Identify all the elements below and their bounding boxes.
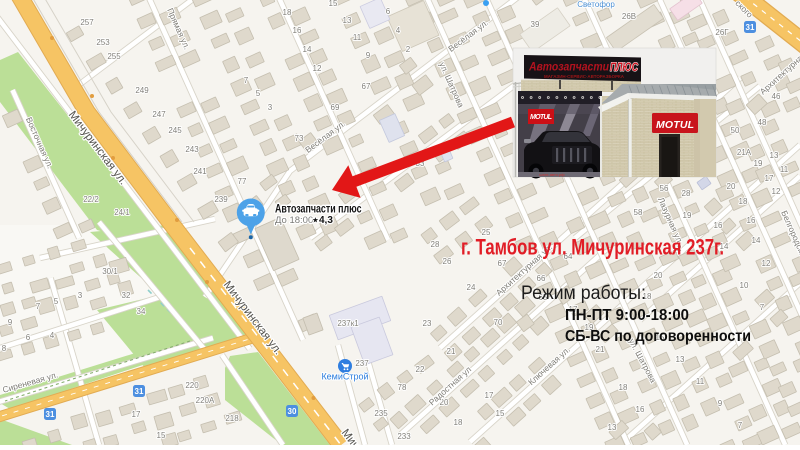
svg-text:штат-авто.рф: штат-авто.рф (539, 172, 565, 177)
svg-text:237к1: 237к1 (337, 319, 359, 328)
svg-text:★: ★ (312, 215, 319, 224)
svg-text:70: 70 (494, 318, 503, 327)
svg-text:253: 253 (96, 38, 110, 47)
svg-text:218: 218 (225, 414, 239, 423)
svg-text:18: 18 (739, 197, 748, 206)
svg-text:77: 77 (238, 177, 247, 186)
svg-text:69: 69 (331, 103, 340, 112)
svg-text:56: 56 (660, 184, 669, 193)
svg-text:67: 67 (362, 82, 371, 91)
svg-text:г. Тамбов ул. Мичуринская 237г: г. Тамбов ул. Мичуринская 237г. (461, 235, 724, 260)
svg-text:16: 16 (293, 26, 302, 35)
svg-text:15: 15 (157, 431, 166, 440)
svg-text:26: 26 (443, 257, 452, 266)
svg-text:78: 78 (398, 383, 407, 392)
svg-text:32: 32 (122, 291, 131, 300)
svg-text:2: 2 (406, 45, 411, 54)
svg-text:11: 11 (696, 377, 705, 386)
svg-text:23: 23 (423, 319, 432, 328)
svg-text:9: 9 (718, 399, 723, 408)
svg-text:243: 243 (185, 145, 199, 154)
svg-text:46: 46 (772, 92, 781, 101)
svg-text:31: 31 (746, 23, 755, 32)
svg-text:50: 50 (731, 126, 740, 135)
svg-text:8: 8 (2, 344, 7, 353)
svg-text:30/1: 30/1 (102, 267, 118, 276)
svg-text:КемиСтрой: КемиСтрой (321, 372, 368, 382)
svg-text:4: 4 (50, 331, 55, 340)
svg-text:31: 31 (46, 410, 55, 419)
svg-text:5: 5 (54, 297, 59, 306)
svg-text:247: 247 (152, 110, 166, 119)
svg-text:239: 239 (214, 195, 228, 204)
svg-text:26Г: 26Г (715, 28, 729, 37)
svg-text:11: 11 (353, 33, 362, 42)
svg-text:7: 7 (760, 303, 765, 312)
svg-text:СБ-ВС по договоренности: СБ-ВС по договоренности (565, 328, 751, 345)
svg-text:13: 13 (608, 423, 617, 432)
svg-text:20: 20 (654, 271, 663, 280)
svg-text:21: 21 (447, 347, 456, 356)
svg-text:15: 15 (329, 0, 338, 8)
svg-text:4: 4 (396, 26, 401, 35)
svg-text:Режим работы:: Режим работы: (521, 283, 646, 304)
svg-text:58: 58 (634, 208, 643, 217)
svg-text:MOTUL: MOTUL (656, 119, 694, 131)
svg-text:257: 257 (80, 18, 94, 27)
svg-text:220А: 220А (196, 396, 215, 405)
svg-text:19: 19 (683, 211, 692, 220)
svg-text:7: 7 (244, 76, 249, 85)
svg-text:17: 17 (485, 391, 494, 400)
svg-text:12: 12 (762, 259, 771, 268)
svg-text:6: 6 (26, 333, 31, 342)
svg-text:39: 39 (531, 20, 540, 29)
svg-text:До 18:00: До 18:00 (275, 215, 313, 226)
svg-text:14: 14 (752, 236, 761, 245)
svg-text:7: 7 (738, 421, 743, 430)
svg-text:233: 233 (397, 432, 411, 441)
svg-text:66: 66 (537, 274, 546, 283)
svg-text:16: 16 (636, 405, 645, 414)
svg-text:237: 237 (355, 359, 369, 368)
svg-text:Автозапчасти: Автозапчасти (528, 60, 609, 74)
svg-text:3: 3 (268, 103, 273, 112)
svg-text:9: 9 (8, 318, 13, 327)
svg-text:3: 3 (78, 291, 83, 300)
svg-text:6: 6 (386, 7, 391, 16)
svg-text:Светофор: Светофор (577, 0, 615, 9)
svg-text:13: 13 (343, 16, 352, 25)
svg-text:12: 12 (772, 187, 781, 196)
svg-text:30: 30 (288, 407, 297, 416)
svg-text:235: 235 (374, 409, 388, 418)
svg-text:15: 15 (496, 409, 505, 418)
svg-text:17: 17 (765, 174, 774, 183)
svg-text:24: 24 (467, 283, 476, 292)
svg-text:18: 18 (283, 8, 292, 17)
svg-text:18: 18 (454, 418, 463, 427)
svg-text:22: 22 (416, 365, 425, 374)
svg-text:245: 245 (168, 126, 182, 135)
svg-text:28: 28 (431, 240, 440, 249)
svg-text:21А: 21А (737, 148, 752, 157)
svg-text:241: 241 (193, 167, 207, 176)
svg-text:22/2: 22/2 (83, 195, 99, 204)
svg-text:73: 73 (295, 134, 304, 143)
svg-text:220: 220 (185, 381, 199, 390)
svg-text:249: 249 (135, 86, 149, 95)
svg-text:МАГАЗИН·СЕРВИС·АВТОРАЗБОРКА: МАГАЗИН·СЕРВИС·АВТОРАЗБОРКА (544, 74, 624, 79)
svg-text:14: 14 (303, 45, 312, 54)
svg-text:255: 255 (107, 52, 121, 61)
svg-text:17: 17 (132, 410, 141, 419)
svg-text:26В: 26В (622, 12, 636, 21)
svg-text:11: 11 (780, 165, 789, 174)
svg-text:13: 13 (770, 151, 779, 160)
svg-text:20: 20 (727, 182, 736, 191)
svg-text:7: 7 (36, 302, 41, 311)
svg-text:24/1: 24/1 (114, 208, 130, 217)
svg-text:67: 67 (498, 259, 507, 268)
svg-text:19: 19 (754, 159, 763, 168)
svg-text:18: 18 (619, 383, 628, 392)
svg-text:16: 16 (714, 221, 723, 230)
svg-text:48: 48 (758, 118, 767, 127)
svg-text:MOTUL: MOTUL (530, 114, 552, 121)
svg-text:ПЛЮС: ПЛЮС (610, 62, 639, 74)
svg-text:13: 13 (676, 355, 685, 364)
svg-text:4,3: 4,3 (319, 215, 333, 226)
svg-text:34: 34 (137, 307, 146, 316)
svg-text:28: 28 (682, 189, 691, 198)
svg-text:16: 16 (747, 216, 756, 225)
svg-text:12: 12 (313, 64, 322, 73)
svg-text:10: 10 (740, 281, 749, 290)
svg-text:ПН-ПТ 9:00-18:00: ПН-ПТ 9:00-18:00 (565, 307, 689, 324)
svg-text:Автозапчасти плюс: Автозапчасти плюс (275, 202, 362, 216)
svg-text:21: 21 (596, 345, 605, 354)
svg-text:31: 31 (135, 387, 144, 396)
svg-text:9: 9 (366, 51, 371, 60)
svg-text:5: 5 (256, 89, 261, 98)
